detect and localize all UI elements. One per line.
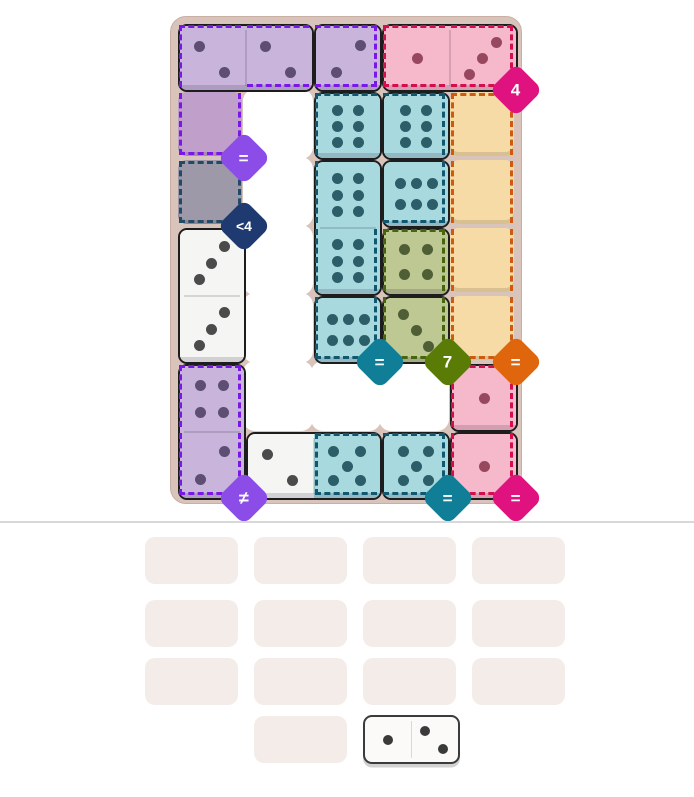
pip (332, 173, 343, 184)
pip (332, 105, 343, 116)
badge-label: = (239, 150, 249, 167)
pip (327, 314, 338, 325)
pip (400, 137, 411, 148)
tile-divider (184, 295, 240, 297)
pip (422, 269, 433, 280)
pip (332, 121, 343, 132)
region-border (179, 25, 241, 28)
region-border (315, 492, 377, 495)
domino-tile[interactable] (178, 24, 314, 92)
pip (332, 256, 343, 267)
pip (332, 239, 343, 250)
pip (395, 199, 406, 210)
pip (332, 137, 343, 148)
region-border (383, 84, 445, 87)
region-border (179, 365, 182, 427)
pip (342, 461, 353, 472)
region-border (315, 229, 318, 291)
badge-label: 7 (443, 354, 452, 371)
pip (194, 274, 205, 285)
pip (420, 726, 430, 736)
pip (218, 380, 229, 391)
pip (328, 446, 339, 457)
pip (355, 475, 366, 486)
pip (194, 340, 205, 351)
tray-slot (145, 658, 238, 705)
tray-slot (254, 600, 347, 647)
pip (219, 446, 230, 457)
region-border (383, 229, 445, 232)
pip (422, 244, 433, 255)
pip (332, 206, 343, 217)
pip (395, 178, 406, 189)
tile-single[interactable] (382, 160, 450, 228)
domino-tile[interactable] (178, 228, 246, 364)
pip (411, 178, 422, 189)
region-border (315, 297, 318, 359)
pip (353, 239, 364, 250)
pip (359, 314, 370, 325)
region-border (383, 25, 445, 28)
tray-domino[interactable] (363, 715, 460, 764)
pip (218, 407, 229, 418)
region-border (451, 25, 513, 28)
pip (421, 105, 432, 116)
tray-slot (145, 537, 238, 584)
tray-slot (363, 658, 456, 705)
region-border (374, 25, 377, 87)
region-border (510, 229, 513, 291)
pip (479, 393, 490, 404)
tray-slot (254, 716, 347, 763)
region-border (383, 433, 445, 436)
region-border (315, 433, 318, 495)
pip (398, 446, 409, 457)
region-border (442, 229, 445, 291)
tile-half (246, 26, 312, 90)
pip (195, 380, 206, 391)
pip (206, 258, 217, 269)
game-page: =<44=7=≠== (0, 0, 694, 797)
pip (400, 105, 411, 116)
region-border (442, 93, 445, 155)
region-border (179, 161, 182, 223)
pip (412, 53, 423, 64)
badge-label: ≠ (239, 489, 249, 507)
pip (411, 461, 422, 472)
region-border (374, 229, 377, 291)
pip (343, 314, 354, 325)
pip (353, 121, 364, 132)
tile-single[interactable] (314, 24, 382, 92)
tile-half (316, 26, 380, 90)
tray-slot (145, 600, 238, 647)
tray-slot (363, 537, 456, 584)
domino-tray (0, 522, 694, 797)
pip (285, 67, 296, 78)
region-border (451, 161, 454, 223)
tile-half (180, 26, 246, 90)
pip (427, 178, 438, 189)
pip (411, 325, 422, 336)
tile-single[interactable] (382, 92, 450, 160)
tile-half (316, 94, 380, 158)
pip (423, 446, 434, 457)
pip (195, 474, 206, 485)
pip (353, 272, 364, 283)
tile-half (384, 230, 448, 294)
region-border (315, 84, 377, 87)
domino-tile[interactable] (246, 432, 382, 500)
region-border (315, 25, 377, 28)
tray-slot (254, 537, 347, 584)
empty-cell-tan[interactable] (450, 228, 514, 292)
pip (399, 269, 410, 280)
badge-label: = (443, 490, 453, 507)
pip (491, 37, 502, 48)
badge-label: = (511, 490, 521, 507)
pip (400, 121, 411, 132)
tile-divider (411, 721, 412, 758)
tray-slot (363, 600, 456, 647)
tile-single[interactable] (382, 228, 450, 296)
pip (383, 735, 393, 745)
pip (343, 335, 354, 346)
tray-domino-half (412, 717, 459, 762)
tile-half (314, 434, 380, 498)
pip (219, 307, 230, 318)
region-border (315, 93, 318, 155)
badge-label: = (511, 354, 521, 371)
region-border (238, 365, 241, 427)
badge-label: 4 (511, 82, 520, 99)
pip (421, 121, 432, 132)
tile-divider (320, 227, 376, 229)
pip (194, 41, 205, 52)
pip (260, 41, 271, 52)
pip (479, 461, 490, 472)
pip (332, 272, 343, 283)
badge-label: <4 (236, 219, 252, 233)
region-border (451, 93, 454, 155)
pip (398, 309, 409, 320)
region-border (179, 25, 182, 87)
pip (355, 40, 366, 51)
region-border (247, 84, 309, 87)
pip (411, 199, 422, 210)
tray-slot (472, 537, 565, 584)
tile-half (180, 366, 244, 432)
pip (219, 67, 230, 78)
region-border (383, 220, 445, 223)
pip (399, 244, 410, 255)
tray-domino-half (365, 717, 412, 762)
pip (353, 206, 364, 217)
pip (206, 324, 217, 335)
region-border (315, 93, 377, 96)
domino-tile[interactable] (314, 160, 382, 296)
tile-divider (245, 30, 247, 86)
tile-half (316, 228, 380, 294)
tile-half (384, 26, 450, 90)
region-border (315, 433, 377, 436)
pip (355, 446, 366, 457)
region-border (383, 25, 386, 87)
badge-label: = (375, 354, 385, 371)
pip (421, 137, 432, 148)
pip (219, 241, 230, 252)
tray-slot (254, 658, 347, 705)
pip (353, 190, 364, 201)
tile-half (384, 162, 448, 226)
region-border (179, 93, 182, 155)
region-border (179, 433, 182, 495)
pip (398, 475, 409, 486)
board-hole (243, 293, 313, 363)
pip (353, 105, 364, 116)
tile-divider (449, 30, 451, 86)
pip (464, 69, 475, 80)
tile-divider (184, 431, 240, 433)
pip (477, 53, 488, 64)
tray-slot (472, 600, 565, 647)
tile-single[interactable] (314, 92, 382, 160)
region-border (442, 161, 445, 223)
region-border (451, 229, 454, 291)
region-border (315, 161, 318, 223)
tile-half (180, 296, 244, 362)
pip (331, 67, 342, 78)
pip (327, 335, 338, 346)
pip (353, 173, 364, 184)
pip (359, 335, 370, 346)
pip (427, 199, 438, 210)
tray-slot (472, 658, 565, 705)
region-border (510, 161, 513, 223)
pip (438, 744, 448, 754)
board-hole (243, 361, 313, 431)
region-border (179, 365, 241, 368)
pip (287, 475, 298, 486)
pip (328, 475, 339, 486)
pip (332, 190, 343, 201)
tile-half (384, 94, 448, 158)
pip (195, 407, 206, 418)
puzzle-board: =<44=7=≠== (170, 16, 522, 504)
pip (353, 256, 364, 267)
region-border (383, 229, 386, 291)
region-border (383, 93, 445, 96)
tile-half (316, 162, 380, 228)
region-border (247, 25, 309, 28)
pip (262, 449, 273, 460)
pip (353, 137, 364, 148)
empty-cell-tan[interactable] (450, 160, 514, 224)
